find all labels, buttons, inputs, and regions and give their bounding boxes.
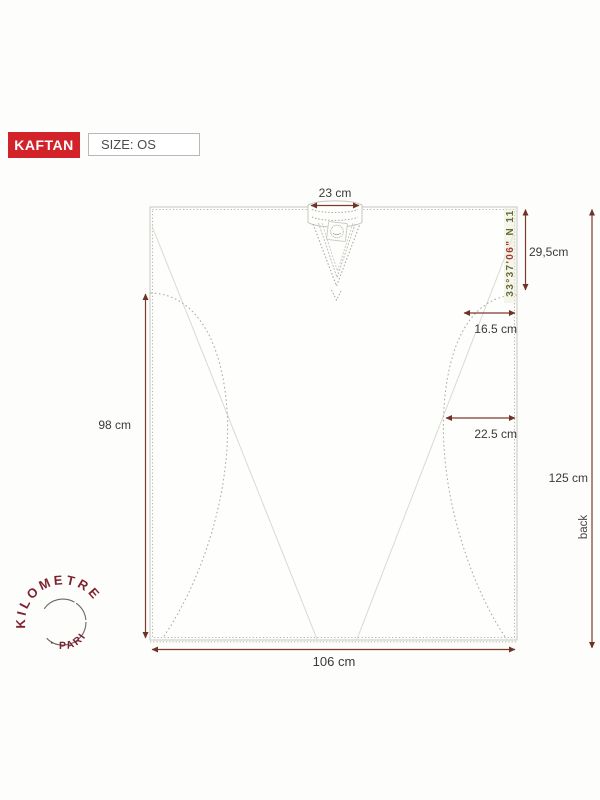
neck-brand-label [326,221,347,241]
label-side-length: 98 cm [61,419,131,432]
label-neck-drop: 29,5cm [529,246,568,259]
kaftan-technical-drawing: KILOMETRE · PARIS [0,0,600,800]
gps-coordinates-text: 33°37'06" N 11 [505,205,519,301]
stamp-bottom-text: · PARIS [0,0,89,652]
stamp-arc-text: KILOMETRE [13,572,104,629]
kilometre-paris-stamp: KILOMETRE · PARIS [0,0,104,652]
svg-text:· PARIS: · PARIS [0,0,89,652]
size-chart-page: { "header": { "product": "KAFTAN", "size… [0,0,600,800]
label-back-word: back [578,506,592,548]
label-upper-side-inset: 16.5 cm [447,323,517,336]
label-lower-side-inset: 22.5 cm [447,428,517,441]
gps-highlight: 06" [505,240,516,260]
gps-suffix: N 11 [505,209,516,239]
label-neck-width: 23 cm [300,187,370,200]
label-hem-width: 106 cm [299,655,369,668]
garment-body-outline [150,207,517,642]
svg-text:KILOMETRE: KILOMETRE [13,572,104,629]
label-back-length: 125 cm [518,472,588,485]
gps-prefix: 33°37' [505,260,516,297]
